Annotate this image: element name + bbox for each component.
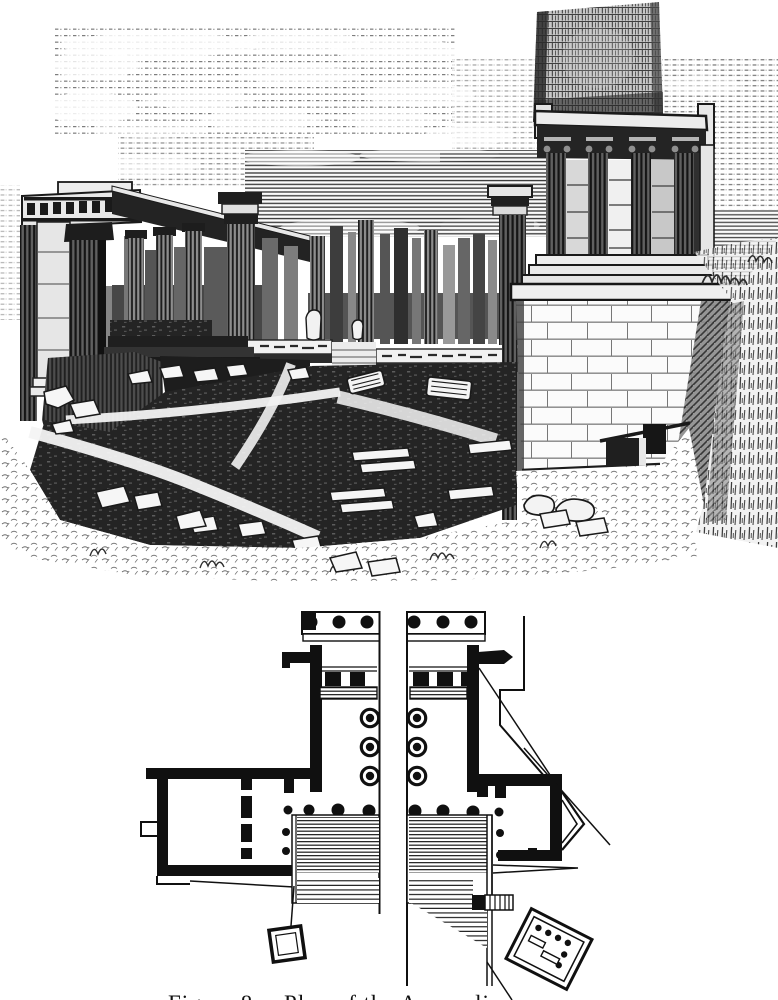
svg-text:Figure 8.—Plan of the Acropoli: Figure 8.—Plan of the Acropolis. [168, 991, 507, 1000]
